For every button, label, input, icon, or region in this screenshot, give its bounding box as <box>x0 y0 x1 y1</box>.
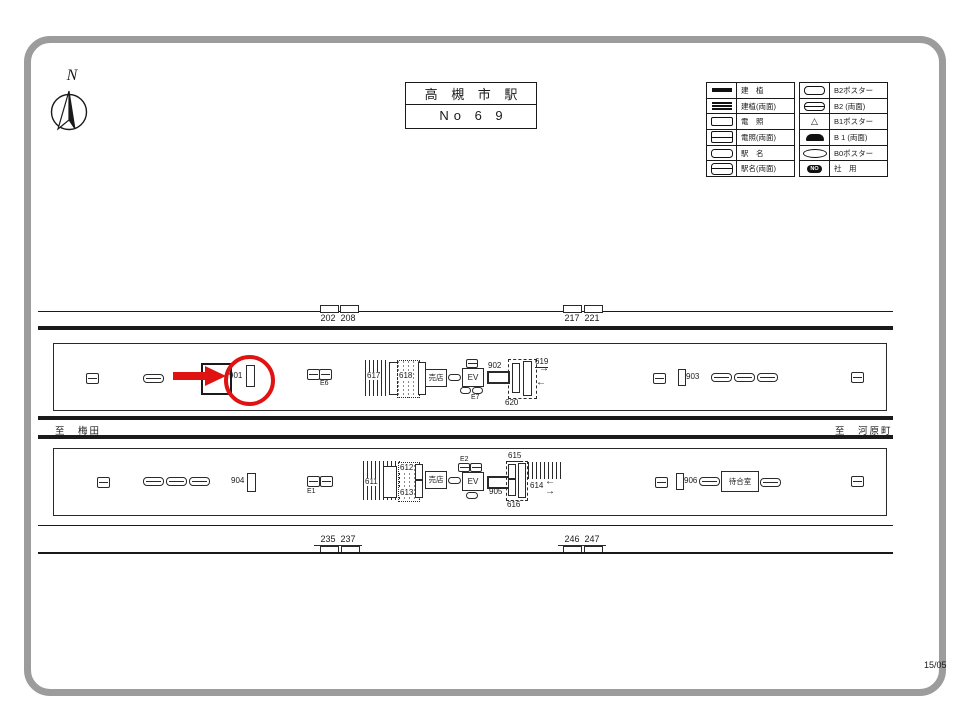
board-icon <box>415 480 423 498</box>
legend-label: 電照(両面) <box>737 129 794 145</box>
wall-labels-246-247: 246 247 <box>558 535 606 546</box>
exit-e1-label: E1 <box>307 488 316 495</box>
arrow-right-icon: → <box>539 364 549 374</box>
wall-poster-217 <box>563 305 582 313</box>
b2-poster-icon <box>699 477 720 486</box>
station-sign-icon <box>307 476 320 487</box>
highlight-arrow-icon <box>173 364 227 388</box>
lower-wall-thin-line <box>38 525 893 526</box>
station-sign-icon <box>458 463 470 472</box>
escalator-618-label: 618 <box>398 372 413 380</box>
exit-e6-label: E6 <box>320 380 329 387</box>
poster-icon <box>448 477 461 484</box>
poster-icon <box>460 387 471 394</box>
station-sign-icon <box>655 477 668 488</box>
poster-icon <box>448 374 461 381</box>
elevator-box: EV <box>462 368 484 387</box>
board-904-label: 904 <box>231 477 244 485</box>
title-box: 高 槻 市 駅 No 6 9 <box>405 82 537 129</box>
wall-labels-217-221: 217 221 <box>558 314 606 323</box>
wall-labels-235-237: 235 237 <box>314 535 362 546</box>
board-903-icon <box>678 369 686 386</box>
lower-wall-line <box>38 552 893 554</box>
station-name: 高 槻 市 駅 <box>406 83 536 105</box>
legend-label: B2ポスター <box>830 83 887 98</box>
station-sign-icon <box>320 476 333 487</box>
board-903-label: 903 <box>686 373 699 381</box>
b2-poster-icon <box>711 373 732 382</box>
lighted-sign-double-icon <box>711 131 733 143</box>
wall-poster-202 <box>320 305 339 313</box>
compass-n-label: N <box>66 67 79 84</box>
sign-902-icon <box>487 371 510 384</box>
exit-e2-label: E2 <box>460 456 469 463</box>
b2-poster-icon <box>760 478 781 487</box>
built-sign-icon <box>712 88 732 92</box>
arrow-right-icon: → <box>545 487 555 497</box>
stairs-617-label: 617 <box>366 372 381 380</box>
b0-poster-icon <box>803 149 827 158</box>
b2-double-poster-icon <box>804 102 825 111</box>
board-icon <box>512 363 520 393</box>
legend-label: B1ポスター <box>830 113 887 129</box>
board-icon <box>518 463 526 498</box>
kiosk-box: 売店 <box>425 369 447 387</box>
board-901-icon <box>246 365 255 387</box>
station-name-sign-double-icon <box>711 163 733 175</box>
station-sign-icon <box>466 359 478 368</box>
stairs-616-label: 616 <box>507 501 520 509</box>
poster-icon <box>472 387 483 394</box>
b1-poster-icon: △ <box>811 117 818 126</box>
waiting-room-box: 待合室 <box>721 471 759 492</box>
board-icon <box>383 466 397 498</box>
compass-north-icon: N <box>48 62 92 144</box>
b2-poster-icon <box>804 86 825 95</box>
escalator-613-label: 613 <box>399 489 414 497</box>
legend-label: 建植(両面) <box>737 98 794 114</box>
b2-poster-icon <box>166 477 187 486</box>
escalator-614-label: 614 <box>529 482 544 490</box>
board-icon <box>523 361 532 396</box>
poster-icon <box>466 492 478 499</box>
kiosk-box: 売店 <box>425 471 447 489</box>
legend-label: 社 用 <box>830 160 887 176</box>
stairs-620-label: 620 <box>505 399 518 407</box>
built-sign-double-icon <box>712 102 732 110</box>
position-901-label: 901 <box>229 372 242 380</box>
b2-poster-icon <box>189 477 210 486</box>
station-sign-icon <box>86 373 99 384</box>
track-edge-line <box>38 416 893 420</box>
legend-label: 建 植 <box>737 83 794 98</box>
arrow-left-icon: ← <box>536 378 546 388</box>
board-904-icon <box>247 473 256 492</box>
legend-label: B2 (両面) <box>830 98 887 114</box>
b2-poster-icon <box>734 373 755 382</box>
elevator-box: EV <box>462 472 484 491</box>
legend-label: 駅名(両面) <box>737 160 794 176</box>
track-edge-line <box>38 435 893 439</box>
upper-wall-line <box>38 311 893 312</box>
board-icon <box>508 479 516 496</box>
station-sign-icon <box>851 476 864 487</box>
stairs-611-label: 611 <box>364 478 379 486</box>
station-sign-icon <box>851 372 864 383</box>
escalator-612-label: 612 <box>399 464 414 472</box>
station-map-sheet: N 高 槻 市 駅 No 6 9 建 植 建植(両面) 電 照 電照(両面) 駅… <box>0 0 960 720</box>
wall-labels-202-208: 202 208 <box>314 314 362 323</box>
station-sign-icon <box>653 373 666 384</box>
legend-label: B0ポスター <box>830 145 887 161</box>
wall-poster-208 <box>340 305 359 313</box>
legend-label: 駅 名 <box>737 145 794 161</box>
b2-poster-icon <box>143 477 164 486</box>
lighted-sign-icon <box>711 117 733 126</box>
page-code: 15/05 <box>924 661 947 670</box>
b2-poster-icon <box>757 373 778 382</box>
station-sign-icon <box>97 477 110 488</box>
board-906-label: 906 <box>684 477 697 485</box>
station-sign-icon <box>319 369 332 380</box>
board-icon <box>508 464 516 479</box>
station-sign-icon <box>470 463 482 472</box>
b1-double-poster-icon <box>806 134 824 141</box>
station-name-sign-icon <box>711 149 733 158</box>
company-use-icon: NO <box>807 165 822 173</box>
sign-905-label: 905 <box>489 488 502 496</box>
legend-right-table: B2ポスター B2 (両面) △ B1ポスター B 1 (両面) B0ポスター … <box>799 82 888 177</box>
legend-label: B 1 (両面) <box>830 129 887 145</box>
track-edge-line <box>38 326 893 330</box>
legend-label: 電 照 <box>737 113 794 129</box>
board-icon <box>415 464 423 480</box>
map-number: No 6 9 <box>406 105 536 126</box>
wall-poster-221 <box>584 305 603 313</box>
exit-e7-label: E7 <box>471 394 480 401</box>
b2-poster-icon <box>143 374 164 383</box>
legend-left-table: 建 植 建植(両面) 電 照 電照(両面) 駅 名 駅名(両面) <box>706 82 795 177</box>
board-906-icon <box>676 473 684 490</box>
